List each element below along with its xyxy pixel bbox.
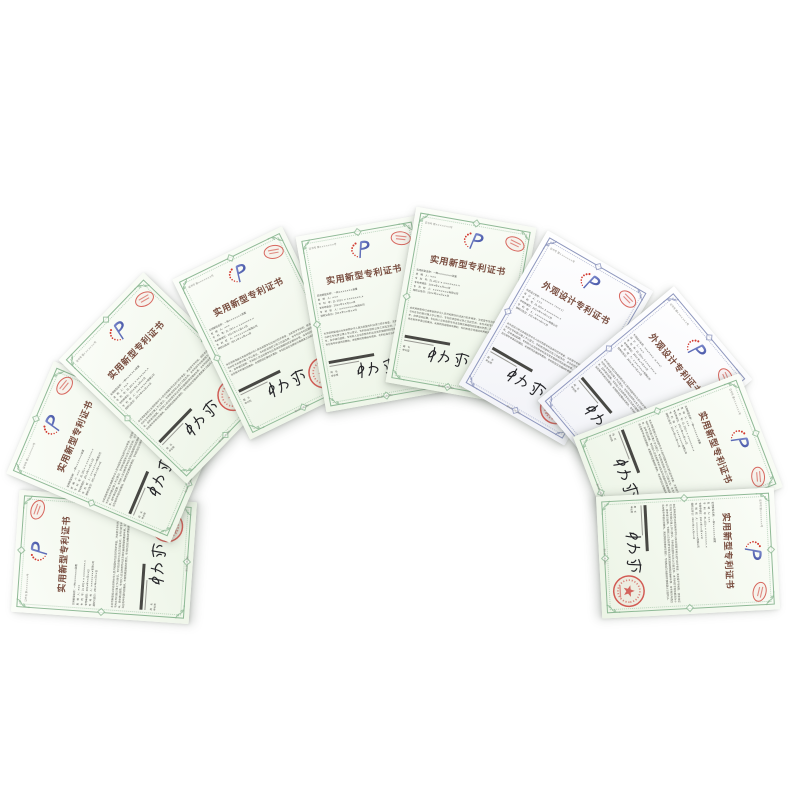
edge-ornament [767, 545, 775, 553]
edge-ornament [752, 429, 760, 437]
edge-ornament [402, 292, 410, 300]
corner-flourish-icon [390, 364, 407, 381]
corner-flourish-icon [578, 434, 597, 453]
official-seal-icon [611, 573, 647, 609]
edge-ornament [32, 415, 40, 423]
edge-ornament [504, 308, 511, 315]
corner-flourish-icon [543, 391, 564, 412]
edge-ornament [313, 320, 321, 328]
corner-flourish-icon [170, 604, 186, 620]
certificate-fan: 证书号 第×××××××号 实用新型专利证书 实用新型名称：一种×××××××装… [0, 0, 800, 800]
edge-ornament [213, 354, 221, 362]
edge-ornament [17, 546, 25, 554]
edge-ornament [653, 407, 661, 415]
issuer-label: 局 长 申长雨 [149, 603, 157, 611]
corner-flourish-icon [154, 518, 174, 538]
corner-flourish-icon [245, 414, 265, 434]
cnipa-logo-icon [459, 229, 486, 252]
red-oval-stamp-icon [750, 466, 767, 488]
issuer-label: 局 长 申长雨 [629, 506, 637, 514]
issuer-label: 局 长 申长雨 [330, 370, 338, 379]
certificate-fields: 实用新型名称：一种×××××××装置 发 明 人：××× 专 利 号：ZL 20… [690, 502, 720, 603]
edge-ornament [103, 317, 109, 323]
edge-ornament [595, 263, 602, 270]
edge-ornament [472, 219, 480, 227]
certificate-sheet: 证书号 第×××××××号 实用新型专利证书 实用新型名称：一种×××××××装… [596, 487, 780, 618]
edge-ornament [706, 334, 713, 341]
edge-ornament [227, 254, 235, 262]
edge-ornament [680, 494, 688, 502]
edge-ornament [606, 345, 613, 352]
cnipa-logo-icon [28, 540, 49, 565]
edge-ornament [686, 604, 694, 612]
corner-flourish-icon [464, 370, 484, 390]
edge-ornament [124, 415, 130, 421]
edge-ornament [97, 608, 105, 616]
cnipa-logo-icon [743, 537, 763, 562]
corner-flourish-icon [755, 492, 771, 508]
corner-flourish-icon [176, 457, 197, 478]
issuer-label: 局 长 申长雨 [402, 345, 410, 354]
corner-flourish-icon [600, 500, 616, 516]
corner-flourish-icon [327, 390, 344, 407]
edge-ornament [353, 228, 361, 236]
edge-ornament [88, 499, 96, 507]
